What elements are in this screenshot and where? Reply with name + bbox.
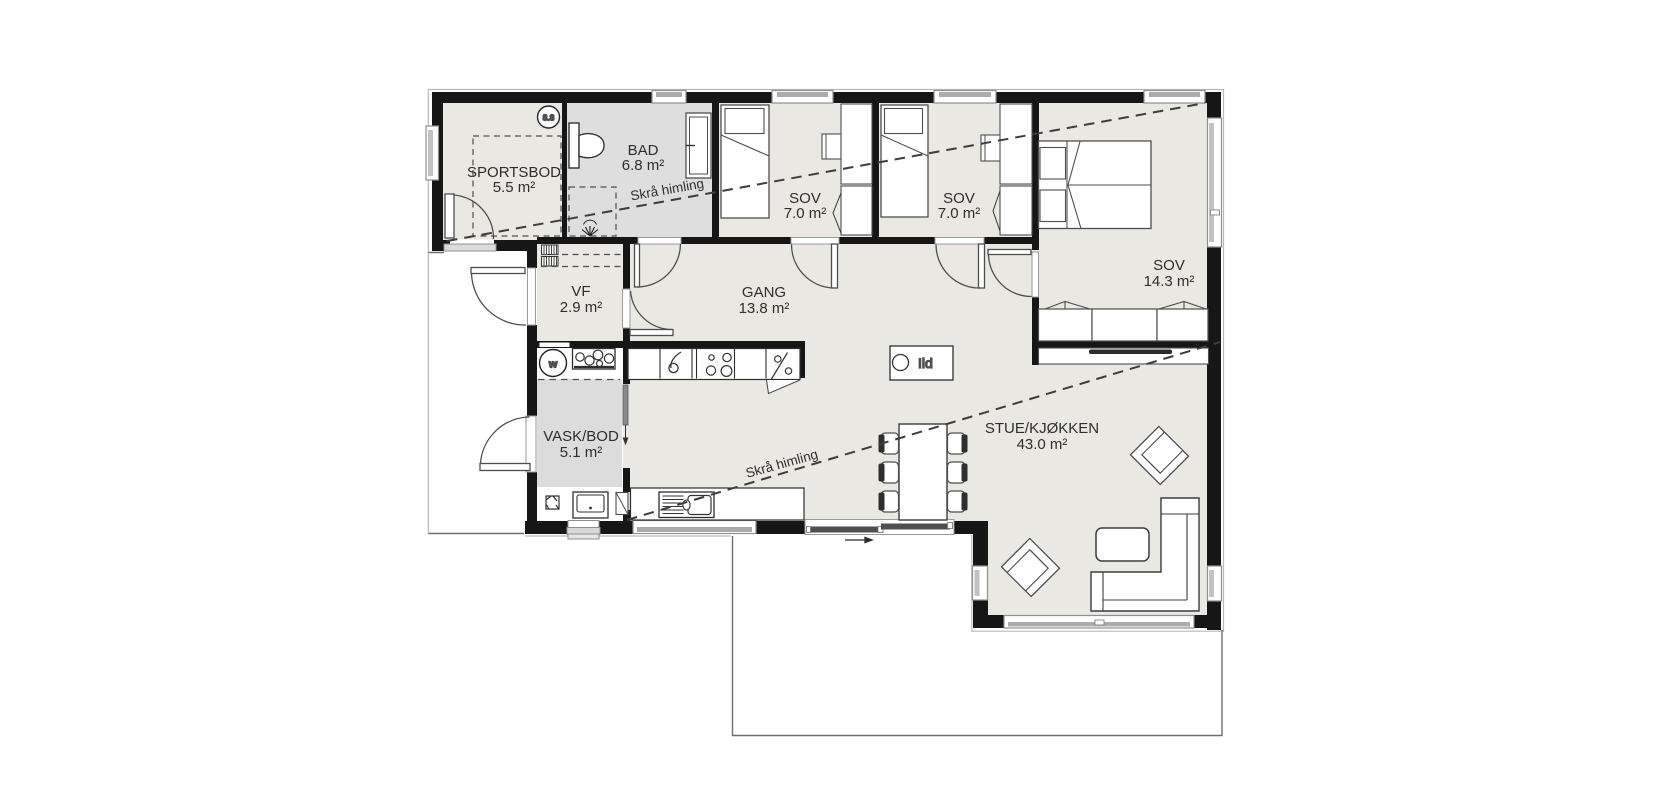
svg-text:VASK/BOD: VASK/BOD [543, 428, 619, 445]
svg-text:Ild: Ild [918, 355, 933, 371]
svg-text:w: w [548, 359, 558, 371]
svg-text:8.8: 8.8 [543, 113, 555, 123]
svg-text:GANG: GANG [742, 284, 786, 301]
svg-text:5.5 m²: 5.5 m² [493, 179, 536, 196]
svg-text:14.3 m²: 14.3 m² [1144, 273, 1195, 290]
svg-text:7.0 m²: 7.0 m² [938, 205, 981, 222]
svg-text:5.1 m²: 5.1 m² [560, 444, 603, 461]
svg-text:13.8 m²: 13.8 m² [739, 300, 790, 317]
svg-text:6.8 m²: 6.8 m² [622, 157, 665, 174]
svg-text:43.0 m²: 43.0 m² [1017, 436, 1068, 453]
svg-text:STUE/KJØKKEN: STUE/KJØKKEN [985, 420, 1099, 437]
svg-text:VF: VF [571, 283, 590, 300]
svg-text:2.9 m²: 2.9 m² [560, 299, 603, 316]
svg-text:SOV: SOV [1153, 257, 1185, 274]
svg-text:7.0 m²: 7.0 m² [784, 205, 827, 222]
